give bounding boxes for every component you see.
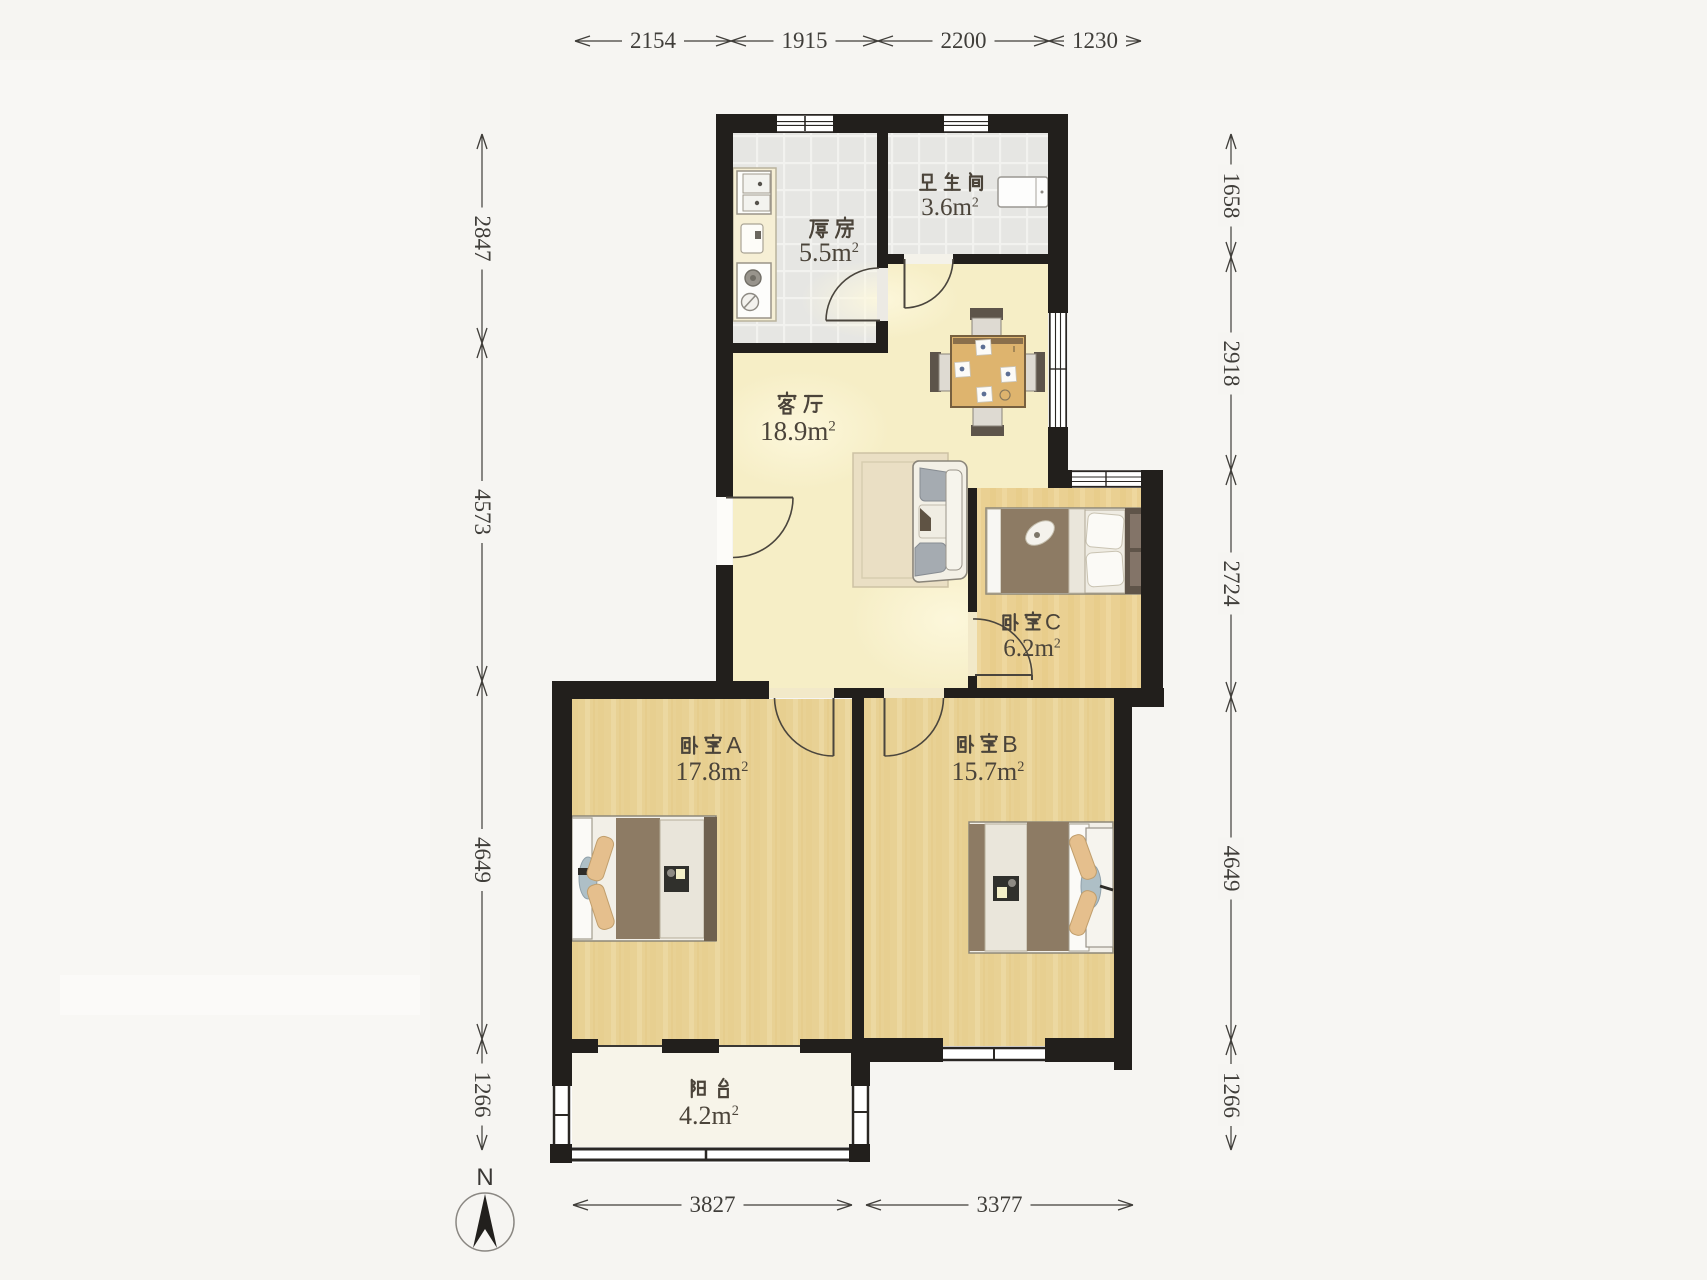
svg-text:4573: 4573	[470, 489, 495, 535]
svg-text:4.2m2: 4.2m2	[679, 1101, 739, 1130]
svg-text:6.2m2: 6.2m2	[1003, 635, 1061, 662]
svg-text:2200: 2200	[941, 28, 987, 53]
svg-text:1230: 1230	[1072, 28, 1118, 53]
svg-text:N: N	[476, 1164, 493, 1191]
svg-text:2154: 2154	[630, 28, 677, 53]
svg-text:3.6m2: 3.6m2	[921, 194, 979, 221]
svg-text:A: A	[726, 732, 742, 758]
svg-text:2724: 2724	[1219, 561, 1244, 608]
svg-text:17.8m2: 17.8m2	[676, 757, 749, 786]
svg-text:3377: 3377	[977, 1192, 1023, 1217]
svg-text:2847: 2847	[470, 216, 495, 262]
svg-text:5.5m2: 5.5m2	[799, 238, 859, 267]
svg-text:4649: 4649	[470, 837, 495, 883]
svg-text:B: B	[1002, 731, 1017, 757]
svg-text:1915: 1915	[782, 28, 828, 53]
svg-text:1658: 1658	[1219, 173, 1244, 219]
svg-text:1266: 1266	[470, 1072, 495, 1118]
svg-text:1266: 1266	[1219, 1072, 1244, 1118]
svg-text:18.9m2: 18.9m2	[760, 416, 836, 446]
svg-text:C: C	[1045, 610, 1061, 635]
svg-text:4649: 4649	[1219, 846, 1244, 892]
svg-text:2918: 2918	[1219, 341, 1244, 387]
svg-text:15.7m2: 15.7m2	[952, 757, 1025, 786]
svg-text:3827: 3827	[690, 1192, 736, 1217]
